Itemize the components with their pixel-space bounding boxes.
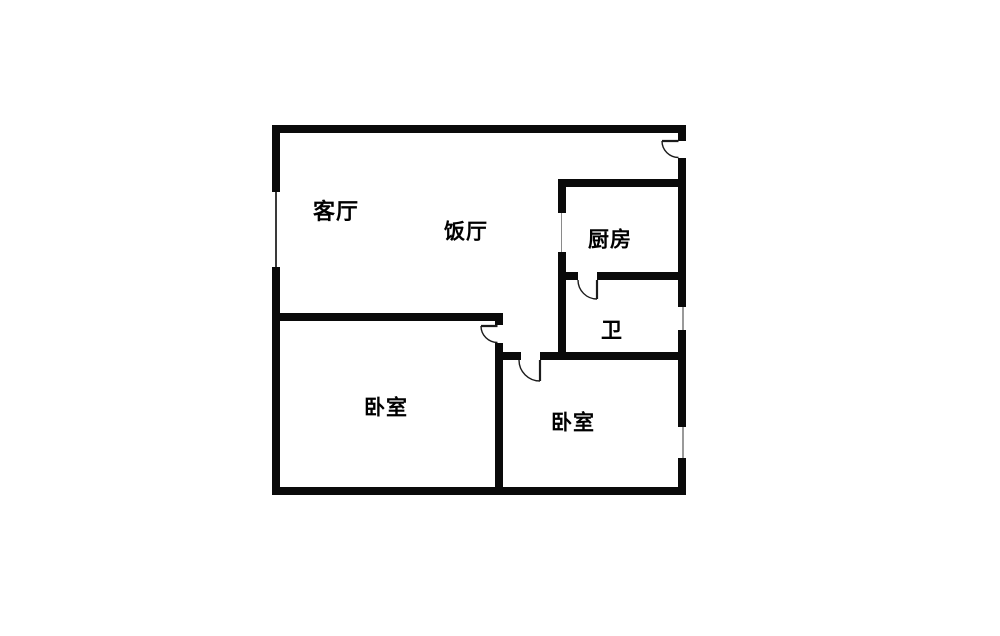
outer-wall-left-lower: [272, 267, 280, 495]
bedroom-left-wall-top: [272, 313, 503, 321]
outer-wall-right-seg4: [678, 458, 686, 495]
kitchen-wall-top: [558, 179, 686, 187]
living-room-window-icon: [275, 192, 277, 267]
kitchen-wall-left-lower: [558, 252, 566, 360]
bedroom-left-door-arc-icon: [481, 326, 498, 343]
outer-wall-bottom: [272, 487, 686, 495]
bedroom-left-wall-right-lower: [495, 343, 503, 495]
room-label-bathroom: 卫: [601, 321, 623, 342]
outer-wall-right-seg1: [678, 125, 686, 141]
room-label-living-room: 客厅: [313, 202, 359, 224]
bathroom-wall-top-left: [558, 272, 578, 280]
bathroom-wall-top-right: [597, 272, 686, 280]
room-label-bedroom-left: 卧室: [364, 398, 408, 419]
bedroom-right-wall-top-right: [540, 352, 686, 360]
bathroom-door-arc-icon: [578, 280, 597, 299]
room-label-bedroom-right: 卧室: [551, 413, 595, 434]
room-label-dining-room: 饭厅: [444, 222, 488, 243]
bedroom-right-wall-top-left: [495, 352, 521, 360]
outer-wall-top: [272, 125, 686, 133]
kitchen-opening-line: [561, 213, 562, 252]
bedroom-left-wall-right-stub: [495, 313, 503, 325]
bedroom-right-window-icon: [682, 427, 684, 458]
bathroom-window-icon: [682, 307, 684, 330]
outer-wall-left-upper: [272, 125, 280, 192]
outer-wall-right-seg3: [678, 330, 686, 427]
kitchen-wall-left-upper: [558, 179, 566, 213]
room-label-kitchen: 厨房: [588, 230, 632, 251]
bedroom-right-door-arc-icon: [519, 360, 540, 381]
floor-plan-canvas: 客厅 饭厅 厨房 卫 卧室 卧室: [0, 0, 1000, 636]
entry-door-arc-icon: [662, 141, 679, 158]
